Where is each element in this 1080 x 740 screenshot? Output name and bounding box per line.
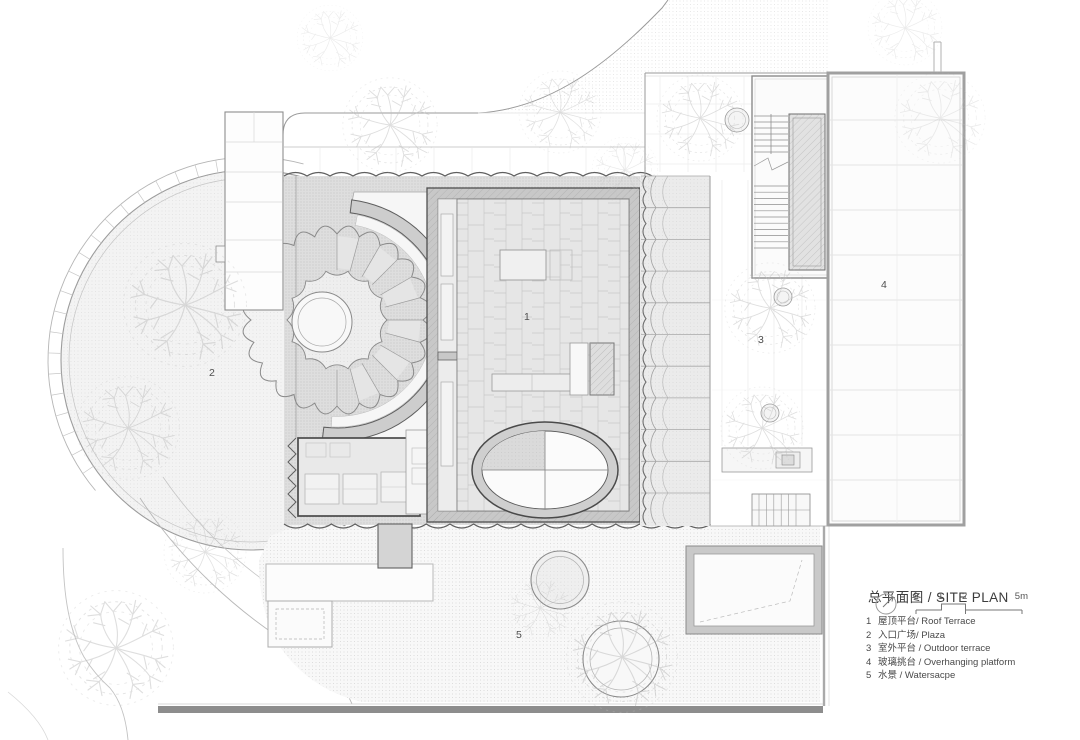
water-pier	[378, 524, 412, 568]
legend-item-4: 4 玻璃挑台 / Overhanging platform	[866, 656, 1080, 670]
roof-skylight-box	[500, 250, 546, 280]
lower-rooms	[298, 430, 448, 516]
reflecting-pool	[686, 546, 822, 634]
label-plaza: 2	[209, 367, 215, 379]
legend-item-5: 5 水景 / Watersacpe	[866, 669, 1080, 683]
label-outdoor-terrace: 3	[758, 334, 764, 346]
stair-enclosure	[752, 76, 832, 278]
planter-box	[268, 601, 332, 647]
scale-bar-line	[916, 604, 1022, 614]
legend-item-3: 3 室外平台 / Outdoor terrace	[866, 642, 1080, 656]
water-deck	[266, 564, 433, 601]
label-overhanging-platform: 4	[881, 279, 887, 291]
site-south-wall	[158, 706, 823, 713]
scale-label-2: 2	[962, 591, 967, 602]
legend: 总平面图 / SITE PLAN 0 1 2 5m 1 屋顶平台/ Roof T…	[866, 586, 1080, 683]
legend-item-2: 2 入口广场/ Plaza	[866, 629, 1080, 643]
tile-roof-band	[640, 176, 710, 526]
oval-skylight	[472, 422, 618, 518]
upper-terrace-joints	[320, 148, 624, 175]
site-plan-page: 1 2 3 4 5 总平面图 / SITE PLAN 0 1 2 5m 1 屋顶…	[0, 0, 1080, 740]
scale-label-5m: 5m	[1015, 591, 1028, 602]
scale-label-0: 0	[913, 591, 918, 602]
scale-bar: 0 1 2 5m	[866, 586, 1080, 620]
north-arrow-icon	[876, 594, 896, 614]
waterscape-area	[158, 526, 829, 713]
entry-walkway	[216, 112, 283, 310]
main-building	[427, 188, 640, 522]
scale-label-1: 1	[938, 591, 943, 602]
label-roof-terrace: 1	[524, 311, 530, 323]
site-boundary	[283, 0, 828, 175]
label-waterscape: 5	[516, 629, 522, 641]
